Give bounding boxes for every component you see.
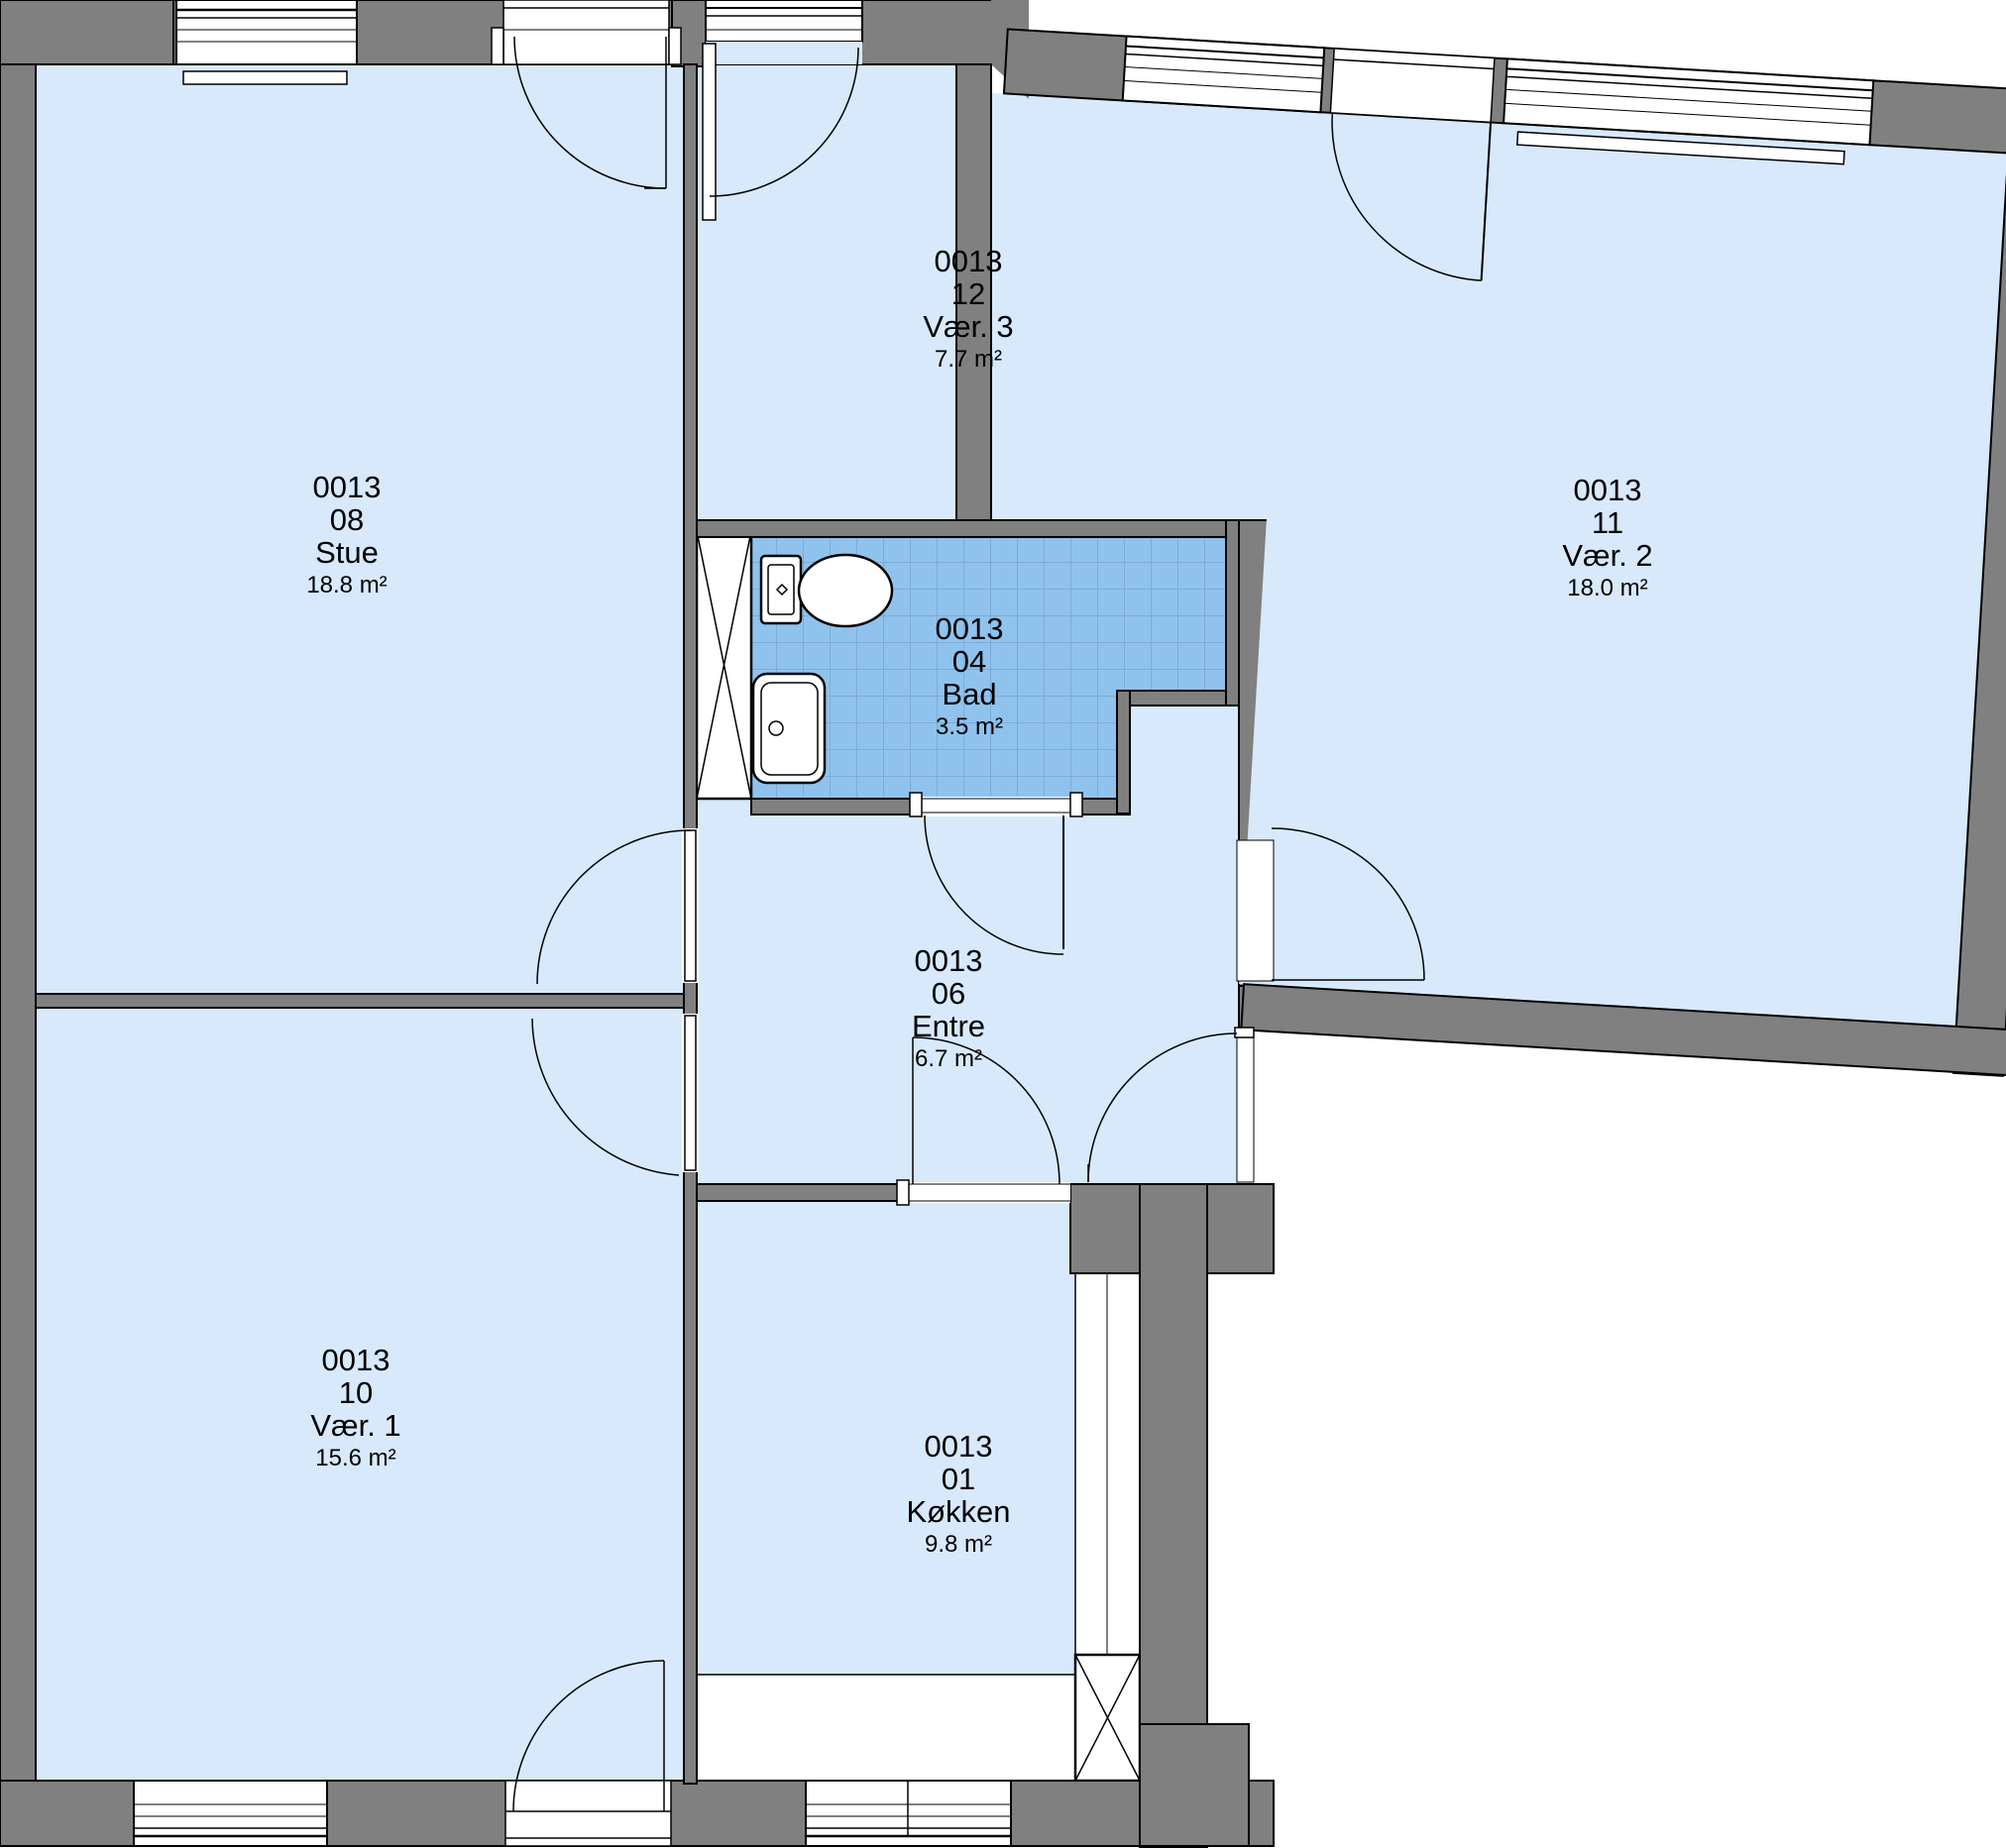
room-area: 18.0 m² — [1562, 572, 1652, 604]
door-leaf — [685, 830, 696, 981]
room-vaer2-lobe-floor — [991, 93, 1298, 522]
room-label-stue: 0013 08 Stue 18.8 m² — [306, 471, 387, 601]
room-unit: 0013 — [906, 1430, 1010, 1463]
room-name: Stue — [306, 536, 387, 569]
room-area: 3.5 m² — [936, 710, 1004, 743]
room-name: Køkken — [906, 1495, 1010, 1528]
room-label-koekken: 0013 01 Køkken 9.8 m² — [906, 1430, 1010, 1561]
room-number: 12 — [923, 277, 1013, 310]
room-label-bad: 0013 04 Bad 3.5 m² — [936, 612, 1004, 743]
room-name: Vær. 1 — [310, 1409, 400, 1442]
wall-top-left-corner — [0, 0, 173, 64]
room-area: 9.8 m² — [906, 1528, 1010, 1561]
window-stue — [176, 0, 357, 64]
sink-icon — [753, 674, 825, 783]
wall-bad-top — [697, 520, 1239, 537]
room-number: 04 — [936, 645, 1004, 678]
kitchen-counter-bottom — [697, 1675, 1075, 1781]
door-leaf — [703, 44, 716, 220]
wall-stue-vaer1 — [36, 994, 684, 1008]
room-number: 08 — [306, 503, 387, 536]
room-unit: 0013 — [923, 245, 1013, 277]
wall-bad-notch-vertical — [1117, 691, 1130, 814]
wall-left — [0, 0, 36, 1846]
wall-bottom-right-corner — [1140, 1724, 1249, 1846]
room-label-vaer2: 0013 11 Vær. 2 18.0 m² — [1562, 474, 1652, 604]
room-number: 01 — [906, 1463, 1010, 1495]
window-koekken — [806, 1781, 1011, 1846]
room-vaer3-floor — [697, 40, 956, 522]
radiator-icon — [183, 71, 347, 84]
room-unit: 0013 — [310, 1344, 400, 1376]
room-entre-nook-floor — [1130, 706, 1239, 1184]
duct-shaft-icon — [1075, 1655, 1140, 1781]
room-number: 10 — [310, 1376, 400, 1409]
room-name: Vær. 3 — [923, 310, 1013, 343]
room-area: 6.7 m² — [912, 1042, 985, 1075]
room-unit: 0013 — [306, 471, 387, 503]
room-label-entre: 0013 06 Entre 6.7 m² — [912, 944, 985, 1075]
window-vaer1 — [134, 1781, 327, 1846]
wall-entre-koekken-left — [697, 1184, 909, 1201]
room-area: 18.8 m² — [306, 569, 387, 601]
room-name: Entre — [912, 1010, 985, 1042]
room-label-vaer1: 0013 10 Vær. 1 15.6 m² — [310, 1344, 400, 1474]
room-unit: 0013 — [912, 944, 985, 977]
room-name: Bad — [936, 678, 1004, 710]
room-unit: 0013 — [936, 612, 1004, 645]
window-junction — [1123, 37, 1325, 113]
door-leaf — [685, 1016, 696, 1170]
room-label-vaer3: 0013 12 Vær. 3 7.7 m² — [923, 245, 1013, 376]
window-vaer3 — [706, 0, 862, 64]
room-area: 7.7 m² — [923, 343, 1013, 376]
toilet-icon — [761, 555, 892, 626]
floor-plan-page: { "plan": { "type": "apartment-floor-pla… — [0, 0, 2006, 1848]
room-unit: 0013 — [1562, 474, 1652, 506]
room-number: 11 — [1562, 506, 1652, 539]
room-area: 15.6 m² — [310, 1442, 400, 1474]
room-name: Vær. 2 — [1562, 539, 1652, 572]
duct-shaft-icon — [697, 531, 751, 799]
wall-bad-right — [1226, 520, 1239, 706]
room-number: 06 — [912, 977, 985, 1010]
